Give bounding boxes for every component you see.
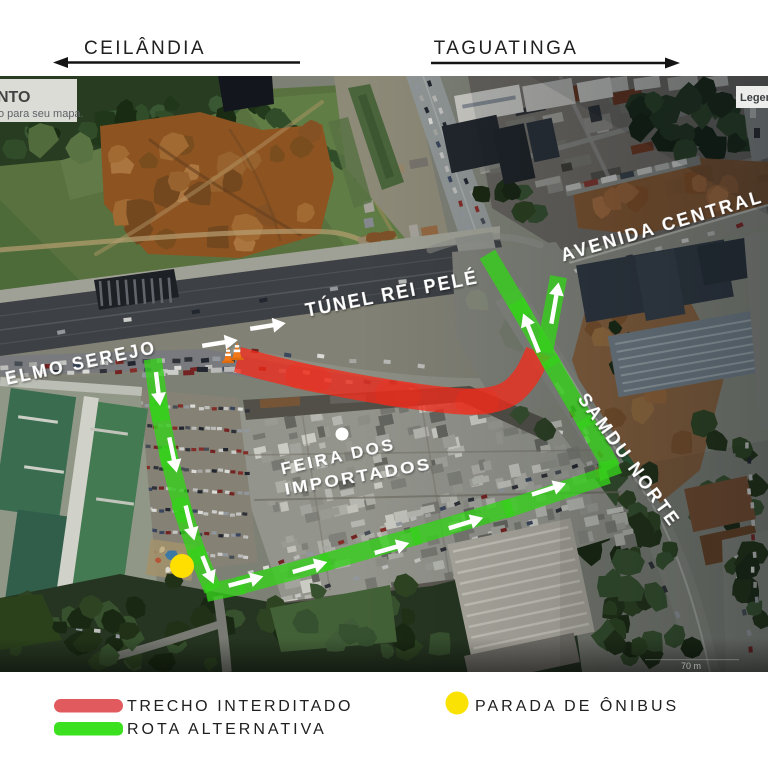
svg-text:CEILÂNDIA: CEILÂNDIA	[84, 37, 206, 59]
svg-text:70 m: 70 m	[681, 661, 701, 671]
svg-text:o para seu mapa.: o para seu mapa.	[0, 108, 84, 120]
svg-text:ROTA ALTERNATIVA: ROTA ALTERNATIVA	[127, 721, 327, 738]
svg-text:NTO: NTO	[0, 89, 30, 106]
svg-text:Legen: Legen	[740, 92, 768, 104]
svg-text:TAGUATINGA: TAGUATINGA	[434, 38, 579, 59]
svg-text:TRECHO INTERDITADO: TRECHO INTERDITADO	[127, 698, 353, 715]
svg-text:PARADA DE ÔNIBUS: PARADA DE ÔNIBUS	[475, 696, 679, 715]
